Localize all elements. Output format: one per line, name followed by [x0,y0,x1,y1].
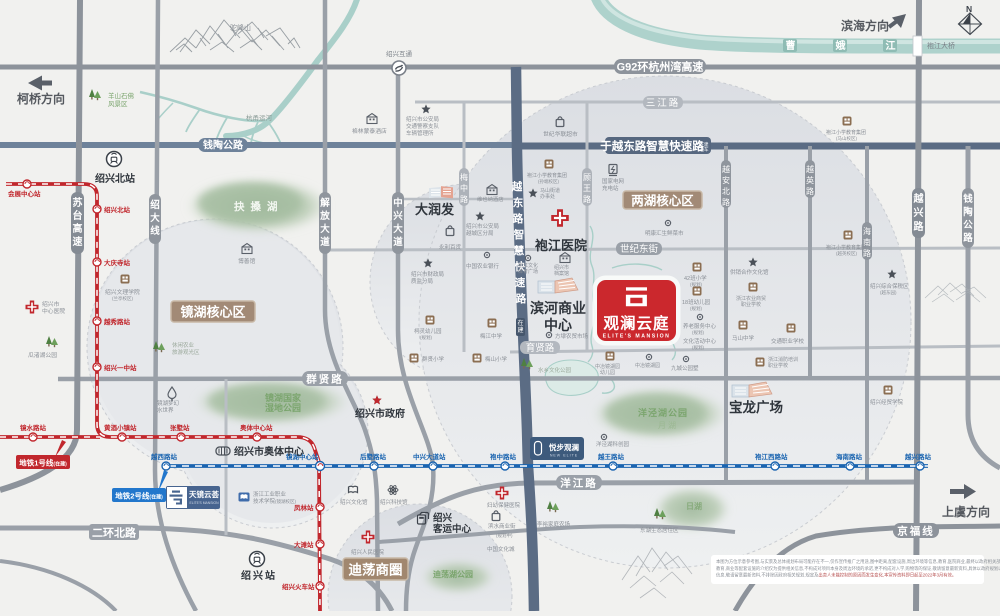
svg-text:明康汇生鲜菜市: 明康汇生鲜菜市 [645,229,684,237]
svg-text:(越东园): (越东园) [880,289,897,296]
svg-text:(规划): (规划) [690,305,702,312]
svg-text:休闲农业: 休闲农业 [172,341,195,349]
svg-text:群贤小学: 群贤小学 [422,355,445,363]
svg-text:档案馆: 档案馆 [554,270,569,277]
svg-text:42班小学: 42班小学 [684,274,707,282]
svg-text:京福线: 京福线 [897,525,935,538]
svg-text:袍江大桥: 袍江大桥 [927,41,955,50]
svg-text:越兴路: 越兴路 [913,192,925,233]
svg-text:镜湖梦幻: 镜湖梦幻 [157,399,180,407]
svg-text:观澜云庭: 观澜云庭 [603,314,669,333]
svg-text:悦步观澜: 悦步观澜 [549,442,579,452]
svg-text:梅山小学: 梅山小学 [485,355,508,363]
svg-text:中心医院: 中心医院 [42,307,65,315]
svg-text:绍兴市公安局: 绍兴市公安局 [406,115,439,123]
svg-text:绍兴市: 绍兴市 [42,300,60,308]
svg-text:信息,敬请留意最新资料,不排除因政府相关规划,规定及出卖人未: 信息,敬请留意最新资料,不排除因政府相关规划,规定及出卖人未能控制的原因而发生变… [716,572,956,579]
svg-text:中冶镜湖园: 中冶镜湖园 [635,362,660,369]
svg-text:(规划): (规划) [692,329,704,336]
svg-text:绍兴火车站: 绍兴火车站 [282,582,315,591]
svg-text:绍兴文理学院: 绍兴文理学院 [105,288,140,296]
svg-text:绍兴经贸学院: 绍兴经贸学院 [870,398,904,406]
svg-text:袍江小学教育集团: 袍江小学教育集团 [826,129,866,136]
svg-text:滨河商业: 滨河商业 [530,300,586,316]
svg-text:月湖: 月湖 [658,421,678,430]
svg-text:通车: 通车 [700,146,709,153]
svg-text:妇幼保健医院: 妇幼保健医院 [487,501,521,509]
svg-text:办事处: 办事处 [540,193,555,200]
svg-text:绍大线: 绍大线 [150,199,160,237]
svg-text:于越东路智慧快速路: 于越东路智慧快速路 [600,139,704,153]
svg-text:中国农业银行: 中国农业银行 [466,262,500,270]
svg-text:绍兴市政府: 绍兴市政府 [355,407,405,420]
svg-text:G92环杭州湾高速: G92环杭州湾高速 [617,60,704,74]
svg-text:奥体中心站: 奥体中心站 [239,423,273,432]
svg-text:袼林蒙泰酒店: 袼林蒙泰酒店 [352,127,387,135]
svg-text:群贤路: 群贤路 [306,373,344,386]
svg-text:交通职业学校: 交通职业学校 [771,337,805,345]
svg-text:袍中路站: 袍中路站 [489,452,517,461]
svg-text:黄酒小镇站: 黄酒小镇站 [104,423,137,432]
svg-text:三江路: 三江路 [646,97,681,109]
svg-text:两湖核心区: 两湖核心区 [631,193,694,208]
svg-text:越秀路站: 越秀路站 [103,317,131,326]
svg-text:供销合作文化馆: 供销合作文化馆 [730,268,769,276]
svg-text:大滩站: 大滩站 [294,540,314,549]
svg-text:博善馆: 博善馆 [238,257,256,265]
svg-text:(规划): (规划) [420,334,432,341]
svg-text:镜水路站: 镜水路站 [20,423,47,432]
svg-text:柯灵幼儿园: 柯灵幼儿园 [414,327,442,335]
svg-text:(规划中): (规划中) [496,532,513,539]
svg-text:绍兴北站: 绍兴北站 [95,172,135,185]
svg-text:(马山校区): (马山校区) [836,135,857,142]
svg-text:世纪东街: 世纪东街 [620,243,659,255]
svg-text:二环北路: 二环北路 [92,526,137,540]
svg-text:凤林站: 凤林站 [294,503,314,512]
svg-text:ELITE'S MANSION: ELITE'S MANSION [189,501,219,505]
svg-text:李裕家庭农场: 李裕家庭农场 [537,520,571,528]
svg-text:镜湖核心区: 镜湖核心区 [180,305,245,320]
svg-text:客运中心: 客运中心 [432,523,472,535]
svg-text:越王路站: 越王路站 [597,452,625,461]
svg-text:张墅站: 张墅站 [170,423,190,432]
svg-text:娥: 娥 [835,39,846,52]
svg-text:车辆管理所: 车辆管理所 [406,129,434,137]
svg-text:绍兴市: 绍兴市 [554,264,569,271]
svg-text:大润发: 大润发 [415,202,455,217]
svg-text:ELITE'S MANSION: ELITE'S MANSION [603,334,671,340]
svg-text:大庆寺站: 大庆寺站 [104,258,131,267]
svg-text:N: N [966,4,972,14]
svg-text:洋江路: 洋江路 [560,477,598,490]
svg-text:袍江小学教育集团: 袍江小学教育集团 [527,172,567,179]
svg-text:18班幼儿园: 18班幼儿园 [682,298,711,306]
svg-text:方埭农贸市场: 方埭农贸市场 [555,332,589,340]
svg-text:梅中路: 梅中路 [460,172,468,204]
svg-text:九城公园墅: 九城公园墅 [671,364,699,372]
svg-text:中冶镜湖园: 中冶镜湖园 [595,363,620,370]
svg-text:滨海方向: 滨海方向 [841,18,889,33]
svg-text:上虞方向: 上虞方向 [942,504,990,519]
svg-text:世纪华联超市: 世纪华联超市 [543,130,578,138]
svg-text:天镜云荟: 天镜云荟 [189,489,219,499]
svg-text:日湖: 日湖 [686,501,702,511]
svg-text:NEW ELITE: NEW ELITE [550,454,578,458]
svg-text:(兰亭校区): (兰亭校区) [112,295,133,302]
svg-text:绍兴: 绍兴 [433,512,453,524]
svg-text:越英路: 越英路 [806,164,814,196]
svg-text:风景区: 风景区 [108,100,128,108]
svg-text:养老服务中心: 养老服务中心 [683,322,717,330]
svg-text:水世界: 水世界 [157,406,174,414]
svg-text:越兴路站: 越兴路站 [904,452,932,461]
svg-text:充电站: 充电站 [602,184,619,192]
svg-text:中心: 中心 [544,317,572,333]
svg-text:绍兴文化馆: 绍兴文化馆 [340,498,368,506]
svg-text:羊山石佛: 羊山石佛 [108,91,135,100]
svg-text:宝龙广场: 宝龙广场 [729,399,783,415]
svg-text:迪荡商圈: 迪荡商圈 [349,562,403,578]
svg-text:洋泾湖科创园: 洋泾湖科创园 [596,440,630,448]
svg-text:育贤路: 育贤路 [526,342,555,354]
svg-text:顾王路: 顾王路 [583,173,591,204]
svg-text:绍兴互通: 绍兴互通 [386,49,413,58]
svg-text:海南路站: 海南路站 [836,452,863,461]
svg-text:(孙端校区): (孙端校区) [538,178,559,185]
svg-text:越西路站: 越西路站 [150,452,178,461]
svg-text:水乡文化公园: 水乡文化公园 [538,366,572,374]
svg-text:本图为方位示意参考图,与实景及总体规划布局可能存在不一,仅作: 本图为方位示意参考图,与实景及总体规划布局可能存在不一,仅作宣传推广之用途,图中… [716,558,1000,565]
svg-text:中国文化城: 中国文化城 [487,545,515,553]
svg-text:杭甬运河: 杭甬运河 [246,113,273,122]
svg-text:梅江中学: 梅江中学 [480,332,503,340]
svg-text:质监分局: 质监分局 [411,277,433,285]
svg-text:体育广场: 体育广场 [518,268,538,275]
svg-text:中兴大道站: 中兴大道站 [413,452,446,461]
svg-text:东湖生态居住区: 东湖生态居住区 [640,526,679,534]
svg-text:会展中心站: 会展中心站 [8,189,41,198]
svg-text:江: 江 [886,39,896,52]
svg-text:袍江小学教育集团: 袍江小学教育集团 [826,244,866,251]
svg-text:曹: 曹 [786,39,796,52]
svg-text:袍江医院: 袍江医院 [534,238,587,253]
svg-text:文化活动中心: 文化活动中心 [683,337,717,345]
svg-text:瓜渚湖公园: 瓜渚湖公园 [28,351,57,359]
svg-text:国家电网: 国家电网 [602,177,625,185]
svg-text:柯桥方向: 柯桥方向 [17,91,65,106]
svg-text:浙江农业商贸: 浙江农业商贸 [736,295,766,302]
svg-text:技术学院(镜湖校区): 技术学院(镜湖校区) [253,497,297,505]
svg-text:驼峰山: 驼峰山 [230,23,251,32]
svg-text:浙江消防培训: 浙江消防培训 [768,356,798,363]
svg-text:绍兴北站: 绍兴北站 [104,205,131,214]
svg-text:(规划): (规划) [692,344,704,351]
svg-text:绍兴综合保税区: 绍兴综合保税区 [870,282,909,290]
svg-text:迪荡湖公园: 迪荡湖公园 [433,569,473,579]
svg-text:绍兴人民医院: 绍兴人民医院 [351,548,385,556]
svg-text:维也纳酒店: 维也纳酒店 [477,195,504,203]
svg-text:绍兴市奥体中心: 绍兴市奥体中心 [234,445,304,458]
svg-text:在建: 在建 [517,319,523,334]
svg-text:越城区分局: 越城区分局 [466,229,494,237]
svg-text:永利百货: 永利百货 [439,243,462,251]
svg-text:绍兴市财政局: 绍兴市财政局 [411,270,444,278]
svg-text:绍兴站: 绍兴站 [241,569,277,582]
svg-text:幼儿园: 幼儿园 [600,369,615,376]
svg-text:教育,商业等配套设施的介绍仅为提供相关信息,不构成对项目本身: 教育,商业等配套设施的介绍仅为提供相关信息,不构成对项目本身及周边环境的承诺,更… [716,565,1000,572]
svg-text:袍江西路站: 袍江西路站 [754,452,788,461]
svg-text:浙江工业职业: 浙江工业职业 [253,490,287,498]
svg-text:旅游观光区: 旅游观光区 [172,348,200,356]
svg-text:绍兴市公安局: 绍兴市公安局 [466,222,499,230]
svg-text:交通警察支队: 交通警察支队 [406,122,440,130]
svg-text:职业学校: 职业学校 [768,362,788,369]
svg-text:后墅路站: 后墅路站 [360,452,387,461]
svg-text:马山中学: 马山中学 [732,334,755,342]
svg-text:洋泾湖公园: 洋泾湖公园 [638,407,688,418]
svg-text:镜湖国家: 镜湖国家 [265,392,302,403]
svg-text:钱陶公路: 钱陶公路 [203,139,244,152]
svg-text:袍江文化: 袍江文化 [518,262,538,269]
svg-text:抉搡湖: 抉搡湖 [234,200,284,213]
svg-text:马山街道: 马山街道 [540,187,560,194]
svg-text:海南路: 海南路 [863,226,871,258]
svg-text:湿地公园: 湿地公园 [265,402,301,413]
svg-text:(越英校区): (越英校区) [836,250,857,257]
svg-text:绍兴一中站: 绍兴一中站 [104,363,137,372]
svg-text:绍兴科技馆: 绍兴科技馆 [380,498,408,506]
svg-text:滨水商业街: 滨水商业街 [488,522,516,530]
svg-text:职业学校: 职业学校 [741,301,761,308]
